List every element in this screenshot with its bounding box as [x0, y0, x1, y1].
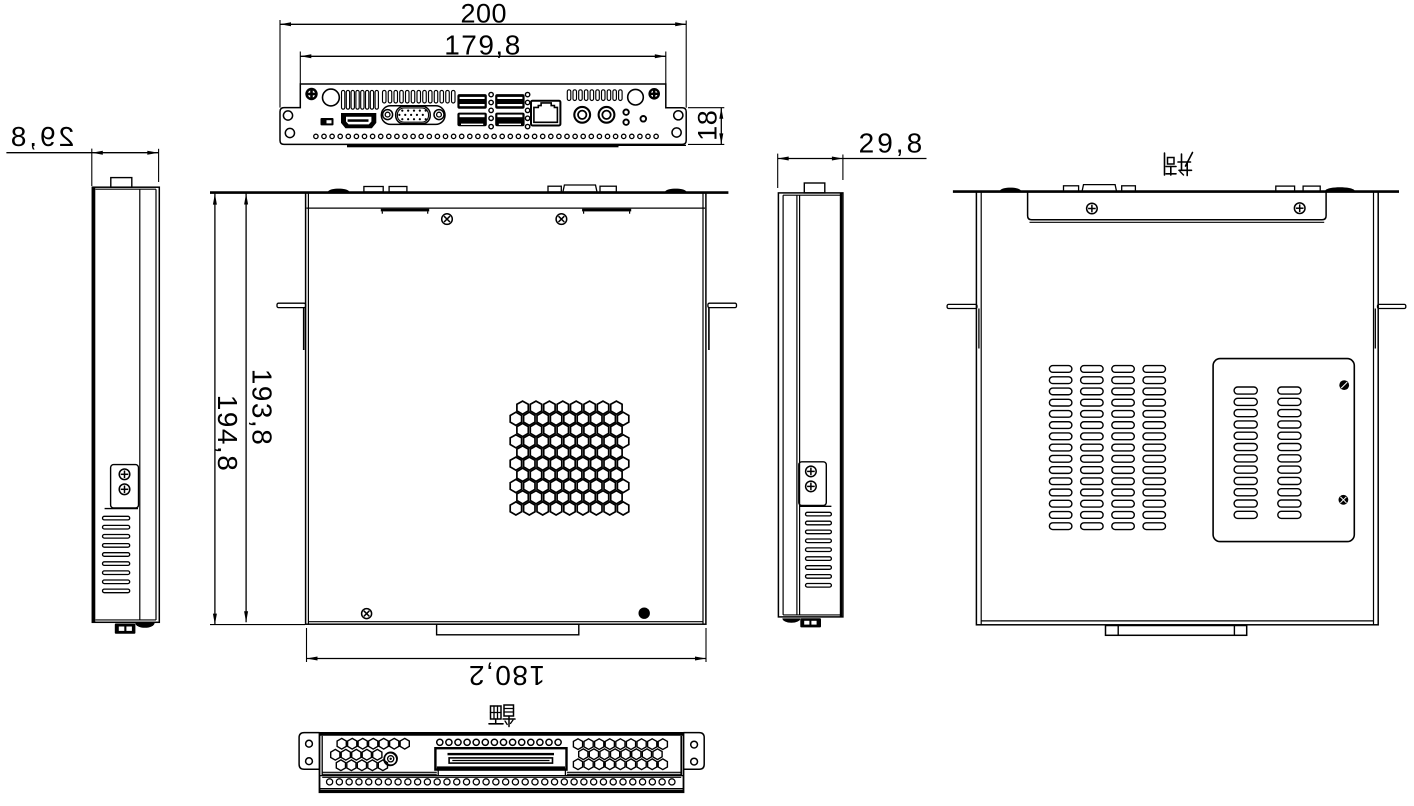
svg-text:200: 200 [461, 0, 508, 29]
svg-text:180,2: 180,2 [467, 660, 545, 691]
svg-text:18: 18 [693, 110, 723, 141]
svg-text:194,8: 194,8 [212, 395, 243, 473]
svg-text:193,8: 193,8 [247, 369, 278, 447]
svg-text:29,8: 29,8 [8, 121, 75, 152]
svg-text:29,8: 29,8 [859, 127, 926, 158]
svg-text:179,8: 179,8 [444, 30, 522, 61]
